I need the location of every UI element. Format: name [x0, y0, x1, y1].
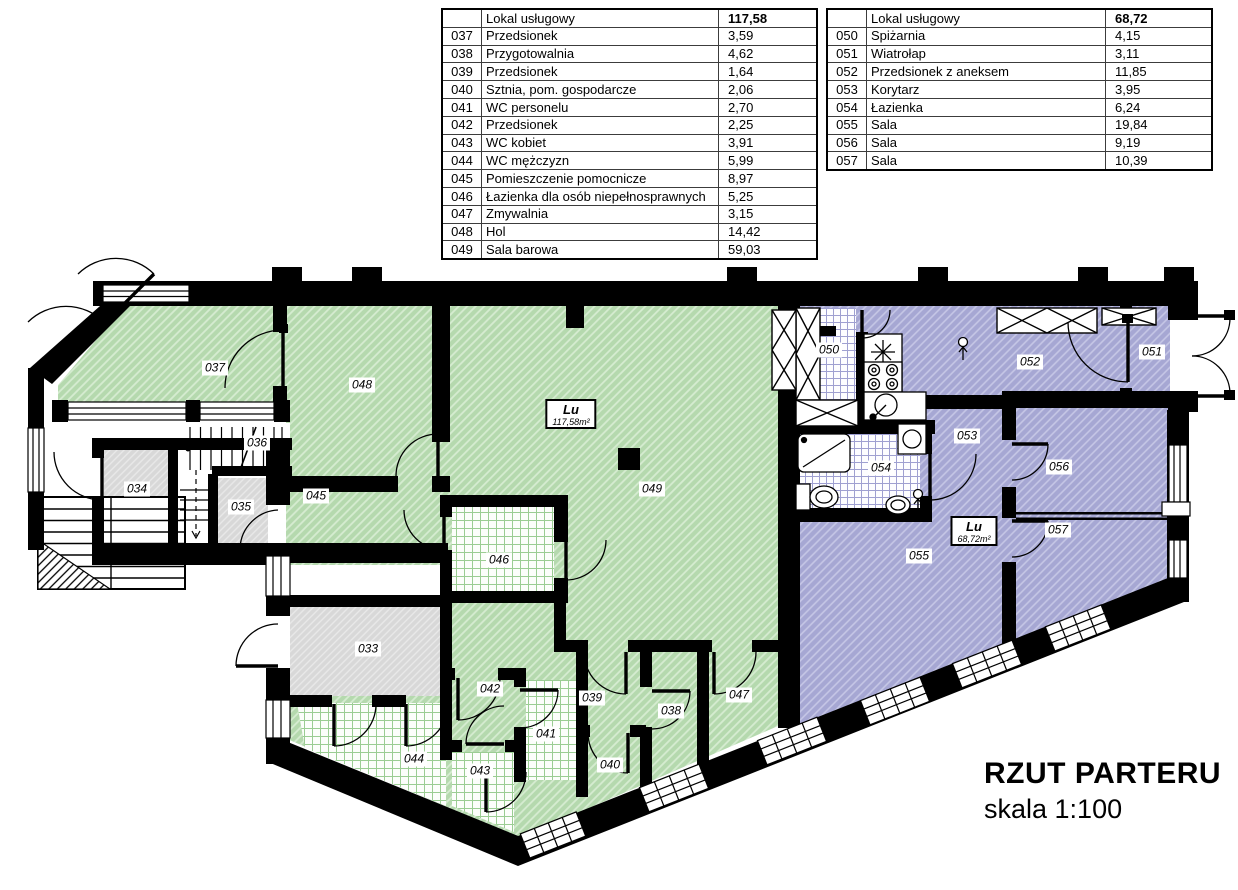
- room-area-cell: 14,42: [719, 223, 818, 241]
- room-name-cell: Przedsionek: [482, 63, 719, 81]
- room-number-cell: 052: [827, 63, 867, 81]
- room-number-cell: 050: [827, 27, 867, 45]
- room-number-label: 033: [355, 642, 381, 657]
- unit-label-area: 117,58m²: [552, 417, 589, 427]
- room-name-cell: Hol: [482, 223, 719, 241]
- room-name-cell: Sztnia, pom. gospodarcze: [482, 81, 719, 99]
- room-area-cell: 3,11: [1106, 45, 1213, 63]
- room-number-cell: 045: [442, 170, 482, 188]
- room-area-cell: 1,64: [719, 63, 818, 81]
- room-number-label: 046: [486, 553, 512, 568]
- table-header-label: Lokal usługowy: [867, 9, 1106, 27]
- room-number-cell: 051: [827, 45, 867, 63]
- table-row: 040Sztnia, pom. gospodarcze2,06: [442, 81, 817, 99]
- room-area-cell: 2,25: [719, 116, 818, 134]
- structural-column: [618, 448, 640, 470]
- room-number-cell: 053: [827, 81, 867, 99]
- room-number-cell: 048: [442, 223, 482, 241]
- room-area-cell: 4,62: [719, 45, 818, 63]
- room-name-cell: Łazienka dla osób niepełnosprawnych: [482, 187, 719, 205]
- table-header-total: 117,58: [719, 9, 818, 27]
- room-number-label: 056: [1046, 460, 1072, 475]
- area-table-green: Lokal usługowy 117,58 037Przedsionek3,59…: [441, 8, 818, 260]
- room-number-label: 048: [349, 378, 375, 393]
- room-number-cell: 040: [442, 81, 482, 99]
- unit-label-area: 68,72m²: [957, 534, 990, 544]
- room-number-cell: 054: [827, 98, 867, 116]
- room-number-label: 051: [1139, 345, 1165, 360]
- drawing-scale: skala 1:100: [984, 794, 1221, 825]
- room-name-cell: Łazienka: [867, 98, 1106, 116]
- table-row: 052Przedsionek z aneksem11,85: [827, 63, 1212, 81]
- room-number-label: 052: [1017, 355, 1043, 370]
- room-number-label: 053: [954, 429, 980, 444]
- table-row: 048Hol14,42: [442, 223, 817, 241]
- room-area-cell: 5,99: [719, 152, 818, 170]
- room-number-cell: 044: [442, 152, 482, 170]
- room-number-label: 050: [816, 343, 842, 358]
- room-area-cell: 5,25: [719, 187, 818, 205]
- room-area-cell: 4,15: [1106, 27, 1213, 45]
- room-name-cell: Wiatrołap: [867, 45, 1106, 63]
- room-number-cell: 037: [442, 27, 482, 45]
- room-number-cell: 047: [442, 205, 482, 223]
- room-number-cell: 038: [442, 45, 482, 63]
- room-area-cell: 3,59: [719, 27, 818, 45]
- room-number-label: 043: [467, 764, 493, 779]
- room-number-label: 042: [477, 682, 503, 697]
- room-area-cell: 9,19: [1106, 134, 1213, 152]
- room-number-label: 057: [1045, 523, 1071, 538]
- unit-label-title: Lu: [552, 402, 589, 417]
- room-number-label: 055: [906, 549, 932, 564]
- room-name-cell: WC kobiet: [482, 134, 719, 152]
- room-name-cell: WC mężczyzn: [482, 152, 719, 170]
- room-name-cell: Sala: [867, 152, 1106, 170]
- room-name-cell: Pomieszczenie pomocnicze: [482, 170, 719, 188]
- room-area-cell: 19,84: [1106, 116, 1213, 134]
- table-row: 053Korytarz3,95: [827, 81, 1212, 99]
- table-row: 045Pomieszczenie pomocnicze8,97: [442, 170, 817, 188]
- unit-area-label: Lu68,72m²: [950, 516, 997, 546]
- table-header-row: Lokal usługowy 68,72: [827, 9, 1212, 27]
- room-area-cell: 3,95: [1106, 81, 1213, 99]
- room-number-cell: 057: [827, 152, 867, 170]
- room-name-cell: Przedsionek z aneksem: [867, 63, 1106, 81]
- room-number-label: 034: [124, 482, 150, 497]
- room-area-cell: 8,97: [719, 170, 818, 188]
- room-number-label: 035: [228, 500, 254, 515]
- room-number-cell: 043: [442, 134, 482, 152]
- floor-plan-page: Lokal usługowy 117,58 037Przedsionek3,59…: [0, 0, 1238, 890]
- drawing-title: RZUT PARTERU: [984, 757, 1221, 791]
- table-row: 044WC mężczyzn5,99: [442, 152, 817, 170]
- area-table-purple: Lokal usługowy 68,72 050Spiżarnia4,15051…: [826, 8, 1213, 171]
- room-number-cell: 042: [442, 116, 482, 134]
- unit-area-label: Lu117,58m²: [545, 399, 596, 429]
- table-row: 051Wiatrołap3,11: [827, 45, 1212, 63]
- room-number-label: 039: [579, 691, 605, 706]
- table-row: 049Sala barowa59,03: [442, 241, 817, 259]
- room-number-cell: 041: [442, 98, 482, 116]
- room-number-label: 041: [533, 727, 559, 742]
- room-number-cell: 046: [442, 187, 482, 205]
- table-row: 054Łazienka6,24: [827, 98, 1212, 116]
- room-name-cell: Sala: [867, 116, 1106, 134]
- table-row: 047Zmywalnia3,15: [442, 205, 817, 223]
- table-row: 050Spiżarnia4,15: [827, 27, 1212, 45]
- table-row: 057Sala10,39: [827, 152, 1212, 170]
- table-row: 037Przedsionek3,59: [442, 27, 817, 45]
- title-block: RZUT PARTERU skala 1:100: [984, 757, 1221, 825]
- room-number-label: 040: [597, 758, 623, 773]
- room-number-label: 047: [726, 688, 752, 703]
- room-number-cell: 049: [442, 241, 482, 259]
- room-area-cell: 3,15: [719, 205, 818, 223]
- table-row: 046Łazienka dla osób niepełnosprawnych5,…: [442, 187, 817, 205]
- room-046-floor: [452, 507, 554, 591]
- room-name-cell: Przedsionek: [482, 116, 719, 134]
- room-number-label: 049: [639, 482, 665, 497]
- table-row: 055Sala19,84: [827, 116, 1212, 134]
- room-number-cell: 055: [827, 116, 867, 134]
- small-sink-icon: [886, 496, 910, 514]
- table-header-total: 68,72: [1106, 9, 1213, 27]
- room-number-label: 054: [868, 461, 894, 476]
- legend-swatch-green-icon: [442, 9, 482, 27]
- room-number-cell: 039: [442, 63, 482, 81]
- unit-label-title: Lu: [957, 519, 990, 534]
- table-row: 038Przygotowalnia4,62: [442, 45, 817, 63]
- room-name-cell: WC personelu: [482, 98, 719, 116]
- room-name-cell: Sala: [867, 134, 1106, 152]
- exterior-notch: [286, 565, 448, 597]
- room-area-cell: 2,70: [719, 98, 818, 116]
- table-header-row: Lokal usługowy 117,58: [442, 9, 817, 27]
- room-name-cell: Korytarz: [867, 81, 1106, 99]
- room-name-cell: Sala barowa: [482, 241, 719, 259]
- room-name-cell: Zmywalnia: [482, 205, 719, 223]
- room-number-label: 036: [244, 436, 270, 451]
- table-row: 056Sala9,19: [827, 134, 1212, 152]
- room-number-label: 044: [401, 752, 427, 767]
- room-area-cell: 11,85: [1106, 63, 1213, 81]
- room-area-cell: 59,03: [719, 241, 818, 259]
- table-row: 042Przedsionek2,25: [442, 116, 817, 134]
- room-area-cell: 10,39: [1106, 152, 1213, 170]
- table-row: 041WC personelu2,70: [442, 98, 817, 116]
- room-number-label: 038: [658, 704, 684, 719]
- legend-swatch-purple-icon: [827, 9, 867, 27]
- room-number-label: 037: [202, 361, 228, 376]
- room-number-cell: 056: [827, 134, 867, 152]
- room-number-label: 045: [303, 489, 329, 504]
- room-name-cell: Przedsionek: [482, 27, 719, 45]
- table-row: 043WC kobiet3,91: [442, 134, 817, 152]
- room-area-cell: 6,24: [1106, 98, 1213, 116]
- table-header-label: Lokal usługowy: [482, 9, 719, 27]
- toilet-icon: [796, 484, 838, 510]
- room-area-cell: 3,91: [719, 134, 818, 152]
- table-row: 039Przedsionek1,64: [442, 63, 817, 81]
- room-area-cell: 2,06: [719, 81, 818, 99]
- room-name-cell: Spiżarnia: [867, 27, 1106, 45]
- room-name-cell: Przygotowalnia: [482, 45, 719, 63]
